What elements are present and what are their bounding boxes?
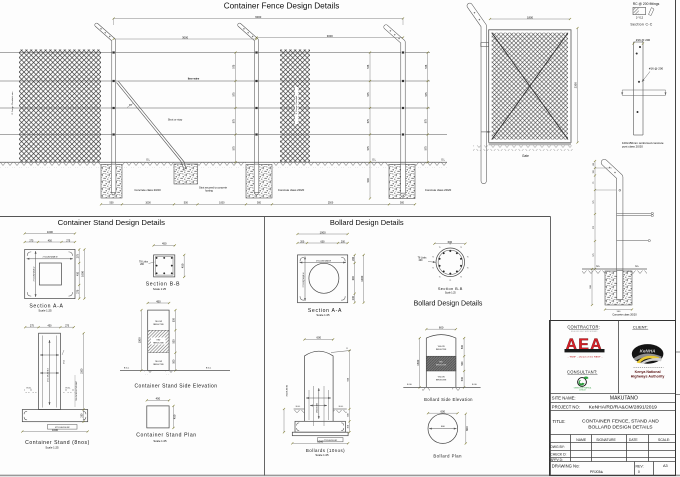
svg-text:..'HOW' - ahead of the REST'..: ..'HOW' - ahead of the REST'.. <box>568 356 603 359</box>
svg-text:Section B-B: Section B-B <box>438 286 463 291</box>
svg-text:MAKUTANO: MAKUTANO <box>610 395 638 401</box>
svg-text:6000: 6000 <box>255 15 261 19</box>
svg-text:500: 500 <box>257 202 262 205</box>
svg-text:CHECK D:: CHECK D: <box>550 453 566 457</box>
svg-text:275: 275 <box>76 289 79 294</box>
svg-text:2500: 2500 <box>328 202 334 205</box>
svg-text:RC @ 200 fittings: RC @ 200 fittings <box>633 2 660 6</box>
svg-text:REFLECTIVE: REFLECTIVE <box>153 324 164 326</box>
svg-text:Container Stand Side Elevatio: Container Stand Side Elevation <box>135 383 218 389</box>
svg-text:2T12: 2T12 <box>63 360 65 364</box>
svg-text:YELLOW: YELLOW <box>438 346 445 348</box>
svg-text:Bollard Design Details: Bollard Design Details <box>330 218 404 227</box>
svg-text:575: 575 <box>233 119 236 124</box>
svg-text:APPV D:: APPV D: <box>550 458 563 462</box>
svg-text:line wire: line wire <box>188 77 200 81</box>
svg-text:600: 600 <box>448 240 453 244</box>
svg-text:0: 0 <box>638 470 640 474</box>
svg-text:4T12-08-200 B2: 4T12-08-200 B2 <box>323 440 337 442</box>
svg-text:450: 450 <box>48 239 53 242</box>
svg-text:75: 75 <box>432 256 434 258</box>
svg-text:DATE: DATE <box>629 438 639 442</box>
svg-text:500: 500 <box>110 202 115 205</box>
svg-text:75: 75 <box>449 244 451 246</box>
svg-text:Concrete class 20/20: Concrete class 20/20 <box>278 188 305 192</box>
svg-text:Container Stand Plan: Container Stand Plan <box>136 432 196 438</box>
svg-text:575: 575 <box>425 146 428 151</box>
svg-text:450: 450 <box>156 397 161 401</box>
svg-text:3000: 3000 <box>182 35 188 39</box>
svg-text:Strut or stay: Strut or stay <box>168 118 183 122</box>
svg-text:PRJ03/▸: PRJ03/▸ <box>590 470 603 474</box>
svg-text:75: 75 <box>460 247 462 249</box>
svg-text:Highways Authority: Highways Authority <box>631 374 665 378</box>
svg-text:2-Y12: 2-Y12 <box>636 16 644 20</box>
svg-text:SITE NAME:: SITE NAME: <box>552 396 576 401</box>
svg-text:4T12-08-200 B.S: 4T12-08-200 B.S <box>47 367 49 381</box>
svg-text:CONSULT: CONSULT <box>579 390 586 392</box>
svg-text:E.GL: E.GL <box>407 384 413 386</box>
svg-text:575: 575 <box>425 92 428 97</box>
svg-text:1000: 1000 <box>317 440 323 444</box>
svg-text:275: 275 <box>66 239 71 242</box>
svg-text:KeNHA/RD/RA&CM/2891/2019: KeNHA/RD/RA&CM/2891/2019 <box>589 405 658 411</box>
svg-text:Scale 1:25: Scale 1:25 <box>45 445 59 449</box>
svg-text:600: 600 <box>465 426 469 431</box>
svg-text:Scale 1:25: Scale 1:25 <box>315 453 329 457</box>
svg-text:Scale 1:25: Scale 1:25 <box>316 313 330 317</box>
svg-text:8' Gauge Chainlink: 8' Gauge Chainlink <box>296 95 298 114</box>
svg-text:2T12-08(T&B)B.W: 2T12-08(T&B)B.W <box>303 272 305 287</box>
svg-text:Section C-C: Section C-C <box>630 23 652 27</box>
svg-text:#16 @ 200: #16 @ 200 <box>636 38 651 42</box>
svg-text:AN ALLIED EAST AFRICA BRAND: AN ALLIED EAST AFRICA BRAND <box>571 330 598 333</box>
svg-text:3000: 3000 <box>327 34 333 38</box>
svg-text:1500: 1500 <box>81 368 84 374</box>
svg-text:500: 500 <box>461 377 464 382</box>
svg-text:SIGNATURE: SIGNATURE <box>596 438 616 442</box>
svg-text:500: 500 <box>172 359 175 364</box>
svg-text:REFLECTIVE: REFLECTIVE <box>436 380 447 382</box>
svg-text:575: 575 <box>233 64 236 69</box>
svg-text:Scale 1:25: Scale 1:25 <box>153 439 167 443</box>
svg-text:500: 500 <box>400 202 405 205</box>
svg-text:900: 900 <box>367 178 370 183</box>
svg-text:1000: 1000 <box>47 230 53 234</box>
svg-text:Scale 1:25: Scale 1:25 <box>153 287 167 291</box>
svg-text:A3: A3 <box>663 464 668 468</box>
svg-text:Gate: Gate <box>522 154 529 158</box>
svg-text:E.G.L: E.G.L <box>27 387 32 389</box>
svg-text:500: 500 <box>461 344 464 349</box>
svg-text:1500: 1500 <box>138 337 142 343</box>
svg-text:Concrete class 20/20: Concrete class 20/20 <box>612 313 637 317</box>
svg-text:E.G.L: E.G.L <box>124 367 130 369</box>
svg-text:G.L: G.L <box>146 158 151 161</box>
svg-text:NAME: NAME <box>576 438 587 442</box>
svg-text:E.G.L: E.G.L <box>66 387 71 389</box>
svg-text:1000: 1000 <box>81 271 85 277</box>
svg-text:=T12-08-200 B1: =T12-08-200 B1 <box>287 385 289 397</box>
svg-text:75: 75 <box>449 280 451 282</box>
svg-text:1000: 1000 <box>219 202 225 205</box>
svg-text:Concrete class 20/20: Concrete class 20/20 <box>425 188 452 192</box>
svg-text:Scale 1:25: Scale 1:25 <box>445 293 457 295</box>
svg-text:600: 600 <box>352 276 355 281</box>
svg-text:YELLOW: YELLOW <box>155 361 162 363</box>
svg-text:1500: 1500 <box>416 359 420 365</box>
svg-text:575: 575 <box>367 119 370 124</box>
svg-text:450: 450 <box>76 271 79 276</box>
svg-text:1000: 1000 <box>320 230 326 234</box>
svg-text:1800: 1800 <box>527 15 533 19</box>
svg-text:75: 75 <box>467 256 469 258</box>
svg-text:575: 575 <box>233 146 236 151</box>
svg-text:450: 450 <box>173 414 177 419</box>
svg-text:200: 200 <box>341 240 346 243</box>
svg-text:575: 575 <box>233 92 236 97</box>
svg-text:Bollard Plan: Bollard Plan <box>433 453 462 458</box>
svg-text:575: 575 <box>367 64 370 69</box>
svg-text:REFLECTIVE: REFLECTIVE <box>436 349 447 351</box>
svg-text:4T12-08-200: 4T12-08-200 <box>317 403 319 413</box>
svg-text:575: 575 <box>367 92 370 97</box>
svg-text:Bollard Design Details: Bollard Design Details <box>414 300 483 307</box>
svg-text:450: 450 <box>48 325 53 328</box>
svg-text:PROJECT NO:: PROJECT NO: <box>552 405 580 410</box>
svg-text:75: 75 <box>439 277 441 279</box>
svg-text:1000: 1000 <box>145 202 151 205</box>
svg-text:CONTAINER FENCE, STAND AND: CONTAINER FENCE, STAND AND <box>582 419 659 425</box>
svg-text:REFLECTIVE: REFLECTIVE <box>153 343 164 345</box>
svg-text:YELLOW: YELLOW <box>438 377 445 379</box>
svg-text:275: 275 <box>29 239 34 242</box>
svg-text:450: 450 <box>162 242 167 246</box>
svg-text:SCALE:: SCALE: <box>658 438 670 442</box>
svg-text:575: 575 <box>367 146 370 151</box>
svg-text:CLIENT:: CLIENT: <box>633 325 648 330</box>
svg-text:75: 75 <box>439 247 441 249</box>
svg-text:T8 Links: T8 Links <box>418 257 428 259</box>
svg-text:DRAWING No:: DRAWING No: <box>552 464 580 469</box>
svg-text:200: 200 <box>352 296 355 301</box>
svg-text:G.L: G.L <box>372 158 377 161</box>
svg-text:1000: 1000 <box>360 275 364 281</box>
svg-text:2T12-08(T&B)B.W: 2T12-08(T&B)B.W <box>33 266 35 281</box>
svg-text:Concrete class 20/20: Concrete class 20/20 <box>134 188 161 192</box>
svg-text:E.GL: E.GL <box>472 384 478 386</box>
svg-text:Strut secured to concrete: Strut secured to concrete <box>199 187 228 190</box>
svg-text:75: 75 <box>467 268 469 270</box>
svg-text:DWG BY:: DWG BY: <box>550 445 565 449</box>
svg-text:Bollard Side Elevation: Bollard Side Elevation <box>424 397 473 402</box>
svg-text:KeNHA: KeNHA <box>640 348 656 353</box>
svg-text:footing: footing <box>205 190 213 193</box>
svg-text:200: 200 <box>352 256 355 261</box>
svg-text:275: 275 <box>65 325 70 328</box>
svg-text:#16 @ 200: #16 @ 200 <box>649 67 664 71</box>
svg-text:Scale 1:25: Scale 1:25 <box>38 309 52 313</box>
svg-text:T8 Links: T8 Links <box>139 261 149 263</box>
svg-text:1000: 1000 <box>52 428 58 432</box>
svg-text:8' Gauge Chainlink wire: 8' Gauge Chainlink wire <box>11 91 14 115</box>
svg-text:YELLOW: YELLOW <box>155 321 162 323</box>
svg-text:500: 500 <box>172 317 175 322</box>
svg-text:450: 450 <box>156 299 161 303</box>
svg-text:450: 450 <box>180 263 184 268</box>
svg-text:600: 600 <box>439 326 444 330</box>
svg-text:REFLECTIVE: REFLECTIVE <box>153 364 164 366</box>
svg-text:CONTRACTOR:: CONTRACTOR: <box>567 325 600 330</box>
svg-text:2300: 2300 <box>574 82 578 88</box>
svg-text:600: 600 <box>321 240 326 243</box>
svg-text:TITLE:: TITLE: <box>553 419 566 424</box>
svg-text:250: 250 <box>81 413 84 418</box>
svg-text:post class 20/20: post class 20/20 <box>622 145 643 149</box>
svg-text:Container Stand Design Details: Container Stand Design Details <box>58 218 165 227</box>
svg-text:E.G.L: E.G.L <box>339 406 344 408</box>
svg-text:G.L: G.L <box>441 158 446 161</box>
svg-text:75: 75 <box>432 268 434 270</box>
svg-text:REFLECTIVE: REFLECTIVE <box>436 364 447 366</box>
svg-text:2T12-08(T&B)B.W: 2T12-08(T&B)B.W <box>316 260 331 262</box>
svg-text:REV:: REV: <box>636 465 644 469</box>
svg-text:BOLLARD DESIGN DETAILS: BOLLARD DESIGN DETAILS <box>588 425 653 431</box>
svg-text:600: 600 <box>317 336 322 340</box>
svg-text:500: 500 <box>461 361 464 366</box>
svg-text:75: 75 <box>460 277 462 279</box>
svg-text:Container Fence Design Details: Container Fence Design Details <box>224 2 340 11</box>
svg-text:E.G.L: E.G.L <box>206 367 212 369</box>
svg-text:275: 275 <box>30 325 35 328</box>
svg-text:500: 500 <box>184 202 189 205</box>
svg-text:575: 575 <box>425 119 428 124</box>
svg-text:Kenya National: Kenya National <box>635 370 661 374</box>
svg-text:500: 500 <box>173 339 176 344</box>
svg-text:275: 275 <box>76 254 79 259</box>
svg-text:600: 600 <box>441 410 446 414</box>
svg-text:2T12-08(T&B)B.W: 2T12-08(T&B)B.W <box>43 257 58 259</box>
svg-text:575: 575 <box>425 64 428 69</box>
svg-text:200: 200 <box>300 240 305 243</box>
svg-text:CONSULTANT:: CONSULTANT: <box>567 370 598 375</box>
svg-text:E.G.L: E.G.L <box>296 406 301 408</box>
